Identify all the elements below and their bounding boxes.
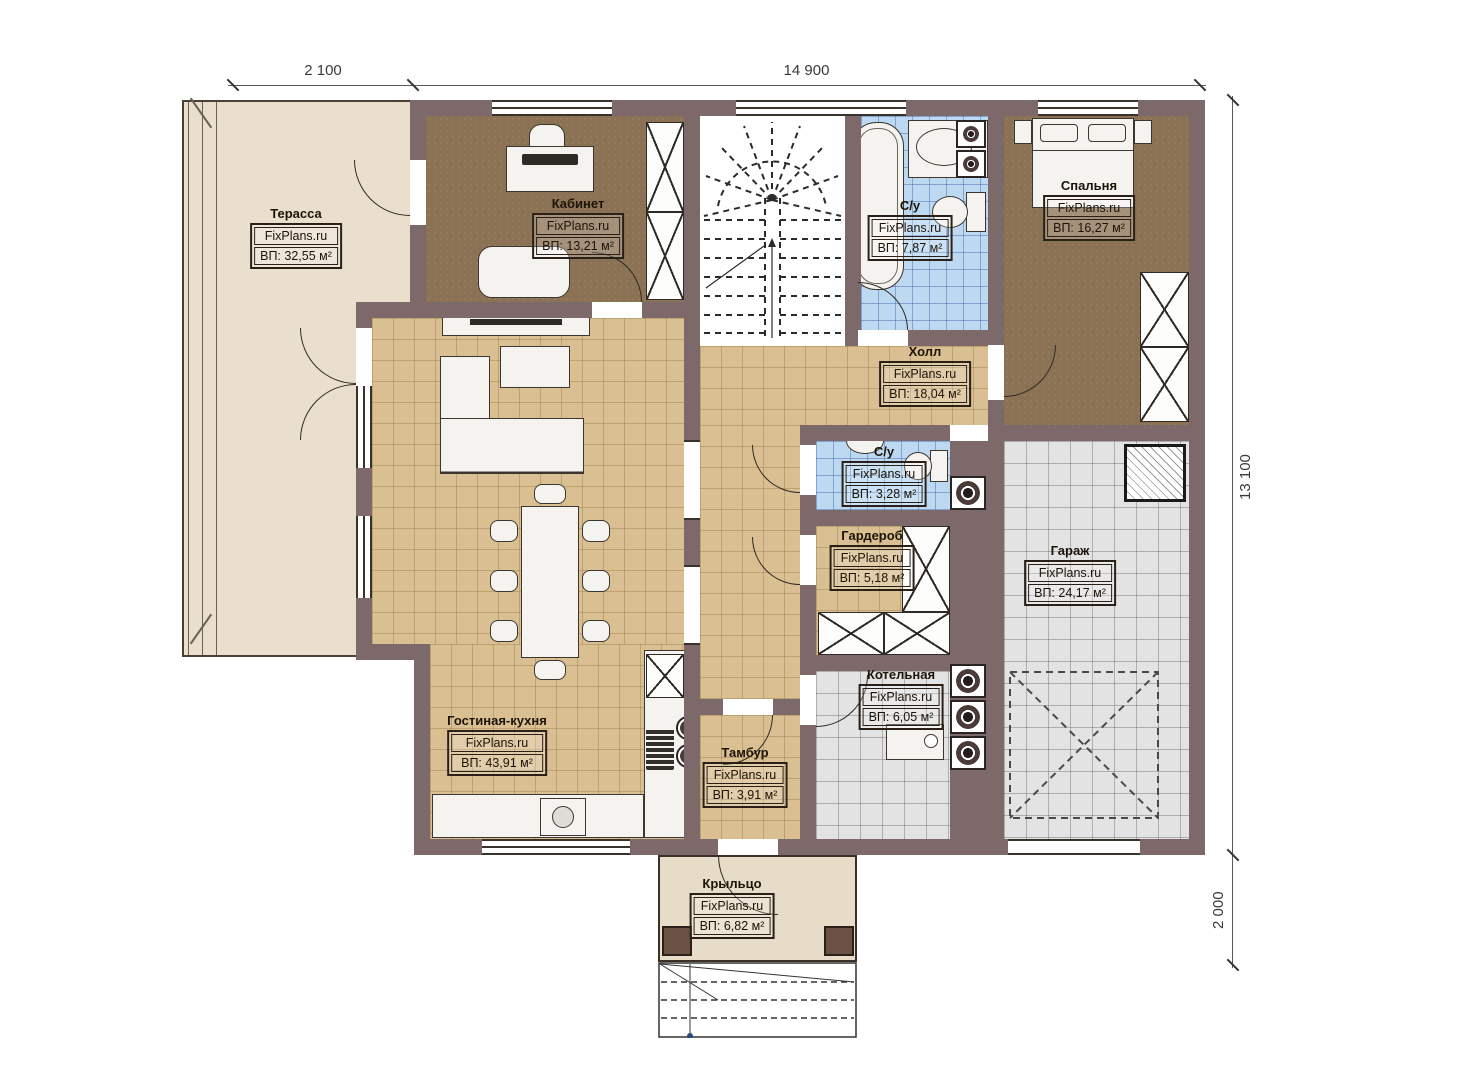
garage-equipment-hatch	[1124, 444, 1186, 502]
dimension-label-right-main: 13 100	[1237, 100, 1254, 855]
bedroom-wardrobe	[1140, 347, 1189, 422]
dimension-label-top-main: 14 900	[413, 62, 1200, 79]
toilet-tank	[966, 192, 986, 232]
room-info-box: FixPlans.ru ВП: 5,18 м²	[830, 545, 915, 591]
office-closet	[646, 212, 684, 300]
dining-chair	[490, 620, 518, 642]
wardrobe-closet	[818, 612, 884, 655]
wall-segment	[356, 302, 426, 318]
garage-parking-marking	[1008, 670, 1160, 820]
porch-column	[824, 926, 854, 956]
dining-table	[521, 506, 579, 658]
wall-segment	[800, 425, 950, 441]
door-opening	[723, 699, 773, 715]
room-label-garage: Гараж FixPlans.ru ВП: 24,17 м²	[1024, 543, 1116, 606]
room-label-vestibule: Тамбур FixPlans.ru ВП: 3,91 м²	[703, 745, 788, 808]
brand-badge: FixPlans.ru	[694, 897, 771, 915]
room-label-wardrobe: Гардероб FixPlans.ru ВП: 5,18 м²	[830, 528, 915, 591]
room-name: Гардероб	[830, 528, 915, 543]
monitor	[522, 154, 578, 165]
room-name: Тамбур	[703, 745, 788, 760]
brand-badge: FixPlans.ru	[707, 766, 784, 784]
dining-chair	[534, 484, 566, 504]
terrace-plank-line	[188, 102, 189, 655]
washer-icon	[956, 120, 986, 148]
dimension-label-top-left: 2 100	[233, 62, 413, 79]
desk	[506, 146, 594, 192]
room-area: ВП: 32,55 м²	[254, 247, 338, 265]
door-opening	[800, 675, 816, 725]
brand-badge: FixPlans.ru	[1047, 199, 1131, 217]
room-area: ВП: 18,04 м²	[883, 385, 967, 403]
wall-segment	[1004, 425, 1189, 441]
room-label-boiler-room: Котельная FixPlans.ru ВП: 6,05 м²	[859, 667, 944, 730]
staircase	[700, 120, 845, 342]
kitchen-counter-bottom	[432, 794, 644, 838]
room-area: ВП: 3,91 м²	[707, 786, 784, 804]
dining-chair	[534, 660, 566, 680]
terrace-plank-line	[202, 102, 203, 655]
door-opening	[988, 345, 1004, 400]
room-name: С/у	[868, 198, 953, 213]
room-area: ВП: 13,21 м²	[536, 237, 620, 255]
door-opening	[592, 302, 642, 318]
wall-segment	[800, 441, 816, 839]
washer-icon	[956, 150, 986, 178]
bedroom-wardrobe	[1140, 272, 1189, 347]
room-info-box: FixPlans.ru ВП: 7,87 м²	[868, 215, 953, 261]
room-name: Гараж	[1024, 543, 1116, 558]
room-label-bedroom: Спальня FixPlans.ru ВП: 16,27 м²	[1043, 178, 1135, 241]
dimension-tick	[1227, 959, 1240, 972]
room-name: Крыльцо	[690, 876, 775, 891]
room-info-box: FixPlans.ru ВП: 6,05 м²	[859, 684, 944, 730]
brand-badge: FixPlans.ru	[883, 365, 967, 383]
room-area: ВП: 7,87 м²	[872, 239, 949, 257]
porch-column	[662, 926, 692, 956]
room-label-bathroom-top: С/у FixPlans.ru ВП: 7,87 м²	[868, 198, 953, 261]
office-closet	[646, 122, 684, 212]
room-area: ВП: 16,27 м²	[1047, 219, 1131, 237]
window	[356, 516, 372, 598]
boiler-dial	[924, 734, 938, 748]
tv	[470, 319, 562, 325]
room-name: Терасса	[250, 206, 342, 221]
room-label-living-kitchen: Гостиная-кухня FixPlans.ru ВП: 43,91 м²	[447, 713, 547, 776]
ventilation-shaft	[950, 700, 986, 734]
garage-gate-opening	[1008, 839, 1140, 855]
room-info-box: FixPlans.ru ВП: 32,55 м²	[250, 223, 342, 269]
room-label-terrace: Терасса FixPlans.ru ВП: 32,55 м²	[250, 206, 342, 269]
room-name: С/у	[842, 444, 927, 459]
kitchen-hood	[646, 654, 684, 698]
brand-badge: FixPlans.ru	[451, 734, 543, 752]
wall-segment	[816, 510, 950, 526]
room-name: Кабинет	[532, 196, 624, 211]
pillow	[1088, 124, 1126, 142]
room-info-box: FixPlans.ru ВП: 3,91 м²	[703, 762, 788, 808]
wall-segment	[1189, 100, 1205, 855]
dimension-line-top	[228, 85, 1206, 86]
room-area: ВП: 3,28 м²	[846, 485, 923, 503]
room-area: ВП: 6,82 м²	[694, 917, 771, 935]
room-info-box: FixPlans.ru ВП: 18,04 м²	[879, 361, 971, 407]
window	[492, 100, 612, 116]
ventilation-shaft	[950, 664, 986, 698]
brand-badge: FixPlans.ru	[536, 217, 620, 235]
stove-grate	[646, 728, 674, 770]
wardrobe-closet	[884, 612, 950, 655]
sofa-seat	[440, 418, 584, 474]
room-label-office: Кабинет FixPlans.ru ВП: 13,21 м²	[532, 196, 624, 259]
nightstand	[1014, 120, 1032, 144]
wall-segment	[426, 302, 700, 318]
pillow	[1040, 124, 1078, 142]
brand-badge: FixPlans.ru	[254, 227, 338, 245]
window	[356, 386, 372, 468]
coffee-table	[500, 346, 570, 388]
room-area: ВП: 24,17 м²	[1028, 584, 1112, 602]
door-opening	[800, 445, 816, 495]
room-name: Гостиная-кухня	[447, 713, 547, 728]
floor-plan: Терасса FixPlans.ru ВП: 32,55 м² Кабинет…	[0, 0, 1473, 1080]
wall-segment	[356, 644, 430, 660]
blanket-line	[1033, 150, 1133, 151]
room-info-box: FixPlans.ru ВП: 3,28 м²	[842, 461, 927, 507]
room-area: ВП: 43,91 м²	[451, 754, 543, 772]
room-name: Спальня	[1043, 178, 1135, 193]
brand-badge: FixPlans.ru	[872, 219, 949, 237]
wall-segment	[414, 660, 430, 839]
brand-badge: FixPlans.ru	[834, 549, 911, 567]
room-info-box: FixPlans.ru ВП: 13,21 м²	[532, 213, 624, 259]
wall-pass-through	[684, 440, 700, 520]
room-info-box: FixPlans.ru ВП: 24,17 м²	[1024, 560, 1116, 606]
room-name: Котельная	[859, 667, 944, 682]
window	[1038, 100, 1138, 116]
dining-chair	[582, 570, 610, 592]
dining-chair	[582, 520, 610, 542]
dining-chair	[490, 570, 518, 592]
room-label-hall: Холл FixPlans.ru ВП: 18,04 м²	[879, 344, 971, 407]
room-info-box: FixPlans.ru ВП: 16,27 м²	[1043, 195, 1135, 241]
door-opening	[800, 535, 816, 585]
nightstand	[1134, 120, 1152, 144]
kitchen-sink-basin	[552, 806, 574, 828]
porch-steps	[658, 962, 857, 1038]
brand-badge: FixPlans.ru	[846, 465, 923, 483]
toilet-tank	[930, 450, 948, 482]
room-label-porch: Крыльцо FixPlans.ru ВП: 6,82 м²	[690, 876, 775, 939]
ventilation-shaft	[950, 476, 986, 510]
room-label-bathroom-small: С/у FixPlans.ru ВП: 3,28 м²	[842, 444, 927, 507]
room-area: ВП: 6,05 м²	[863, 708, 940, 726]
door-opening	[410, 160, 426, 225]
room-area: ВП: 5,18 м²	[834, 569, 911, 587]
dimension-label-right-lower: 2 000	[1210, 855, 1227, 965]
ventilation-shaft	[950, 736, 986, 770]
room-info-box: FixPlans.ru ВП: 43,91 м²	[447, 730, 547, 776]
window	[482, 839, 630, 855]
terrace-plank-line	[216, 102, 217, 655]
wall-pass-through	[684, 565, 700, 645]
dining-chair	[582, 620, 610, 642]
brand-badge: FixPlans.ru	[1028, 564, 1112, 582]
room-name: Холл	[879, 344, 971, 359]
dimension-line-right	[1232, 96, 1233, 968]
wall-segment	[988, 116, 1004, 839]
door-opening	[718, 839, 778, 855]
dining-chair	[490, 520, 518, 542]
brand-badge: FixPlans.ru	[863, 688, 940, 706]
window	[736, 100, 906, 116]
room-info-box: FixPlans.ru ВП: 6,82 м²	[690, 893, 775, 939]
